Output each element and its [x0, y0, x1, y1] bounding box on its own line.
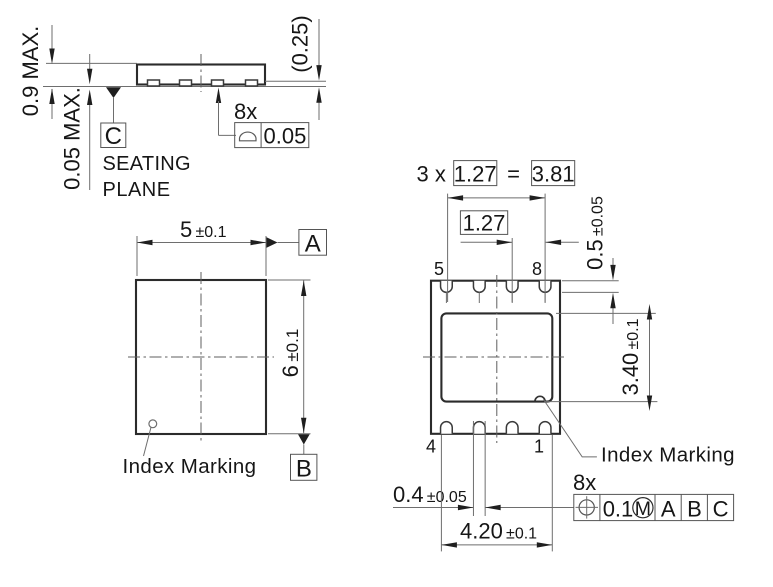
svg-text:1.27: 1.27 [463, 211, 506, 236]
svg-text:PLANE: PLANE [103, 179, 171, 201]
svg-text:B: B [296, 455, 312, 482]
svg-text:A: A [305, 231, 321, 258]
svg-text:0.1: 0.1 [603, 497, 634, 522]
svg-text:=: = [507, 162, 520, 187]
svg-text:8: 8 [532, 259, 542, 279]
svg-text:0.9 MAX.: 0.9 MAX. [18, 26, 43, 116]
svg-text:SEATING: SEATING [103, 153, 191, 175]
svg-text:0.05 MAX.: 0.05 MAX. [60, 87, 85, 190]
svg-text:8x: 8x [234, 99, 257, 124]
svg-text:8x: 8x [573, 470, 596, 495]
svg-text:5: 5 [434, 259, 444, 279]
svg-text:B: B [687, 497, 702, 522]
svg-text:(0.25): (0.25) [288, 15, 313, 72]
svg-text:1: 1 [534, 437, 544, 457]
svg-text:0.05: 0.05 [264, 123, 307, 148]
svg-text:4: 4 [426, 437, 436, 457]
svg-text:3.81: 3.81 [532, 162, 575, 187]
svg-text:Index Marking: Index Marking [601, 444, 735, 467]
svg-text:3 x: 3 x [417, 162, 446, 187]
svg-text:A: A [661, 497, 676, 522]
svg-text:1.27: 1.27 [454, 162, 497, 187]
svg-text:M: M [635, 498, 651, 520]
svg-text:Index Marking: Index Marking [123, 455, 257, 478]
svg-text:C: C [713, 497, 729, 522]
svg-text:C: C [105, 123, 122, 150]
